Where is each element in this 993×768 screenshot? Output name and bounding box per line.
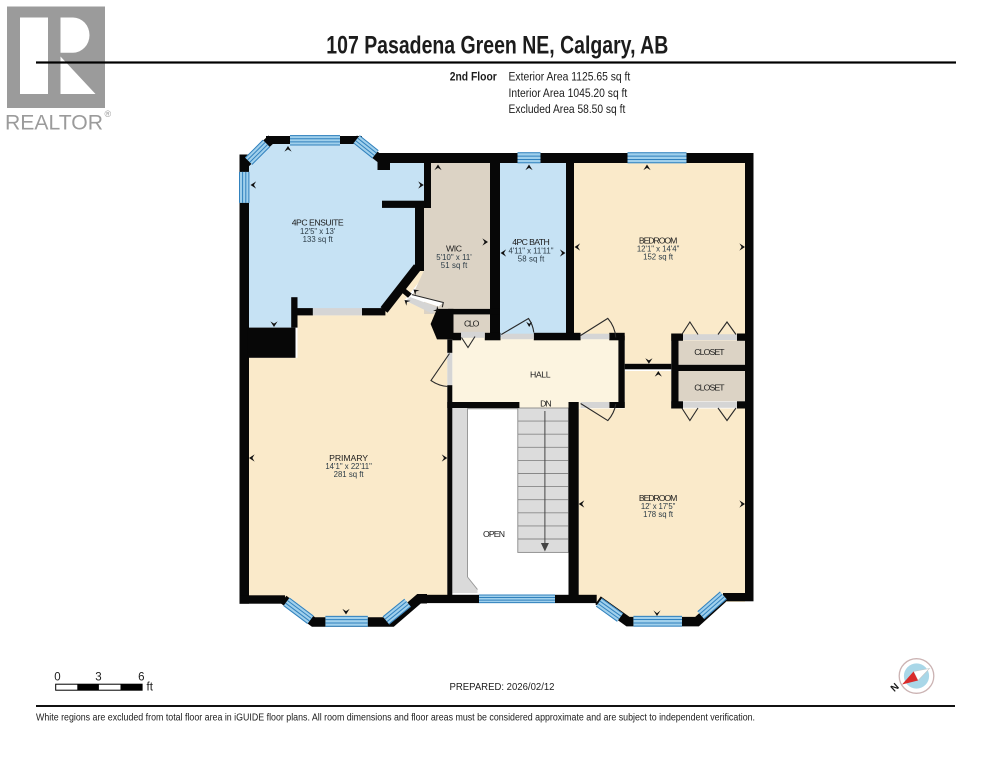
- svg-text:51 sq ft: 51 sq ft: [441, 261, 468, 270]
- svg-text:N: N: [889, 682, 902, 695]
- svg-text:6: 6: [138, 672, 144, 684]
- svg-text:2nd Floor: 2nd Floor: [450, 70, 497, 84]
- svg-text:CLOSET: CLOSET: [694, 347, 725, 357]
- svg-text:152 sq ft: 152 sq ft: [643, 252, 674, 261]
- svg-text:133 sq ft: 133 sq ft: [303, 235, 334, 244]
- svg-text:CLOSET: CLOSET: [694, 383, 725, 393]
- svg-text:Exterior Area 1125.65 sq ft: Exterior Area 1125.65 sq ft: [509, 70, 631, 84]
- svg-text:REALTOR: REALTOR: [5, 111, 103, 135]
- svg-text:CLO: CLO: [464, 318, 480, 328]
- svg-text:58 sq ft: 58 sq ft: [518, 254, 545, 263]
- svg-text:107 Pasadena Green NE, Calgary: 107 Pasadena Green NE, Calgary, AB: [326, 32, 668, 60]
- svg-text:White regions are excluded fro: White regions are excluded from total fl…: [36, 713, 755, 724]
- svg-text:3: 3: [95, 672, 101, 684]
- svg-text:281 sq ft: 281 sq ft: [334, 470, 365, 479]
- svg-text:Excluded Area 58.50 sq ft: Excluded Area 58.50 sq ft: [509, 102, 626, 116]
- svg-text:HALL: HALL: [530, 370, 551, 380]
- svg-text:Interior Area 1045.20 sq ft: Interior Area 1045.20 sq ft: [509, 86, 628, 100]
- svg-text:ft: ft: [147, 682, 154, 694]
- svg-text:OPEN: OPEN: [483, 529, 505, 539]
- svg-text:PREPARED: 2026/02/12: PREPARED: 2026/02/12: [450, 681, 555, 693]
- svg-text:178 sq ft: 178 sq ft: [643, 510, 674, 519]
- svg-text:DN: DN: [540, 399, 552, 409]
- svg-text:0: 0: [54, 672, 60, 684]
- svg-text:®: ®: [105, 109, 112, 119]
